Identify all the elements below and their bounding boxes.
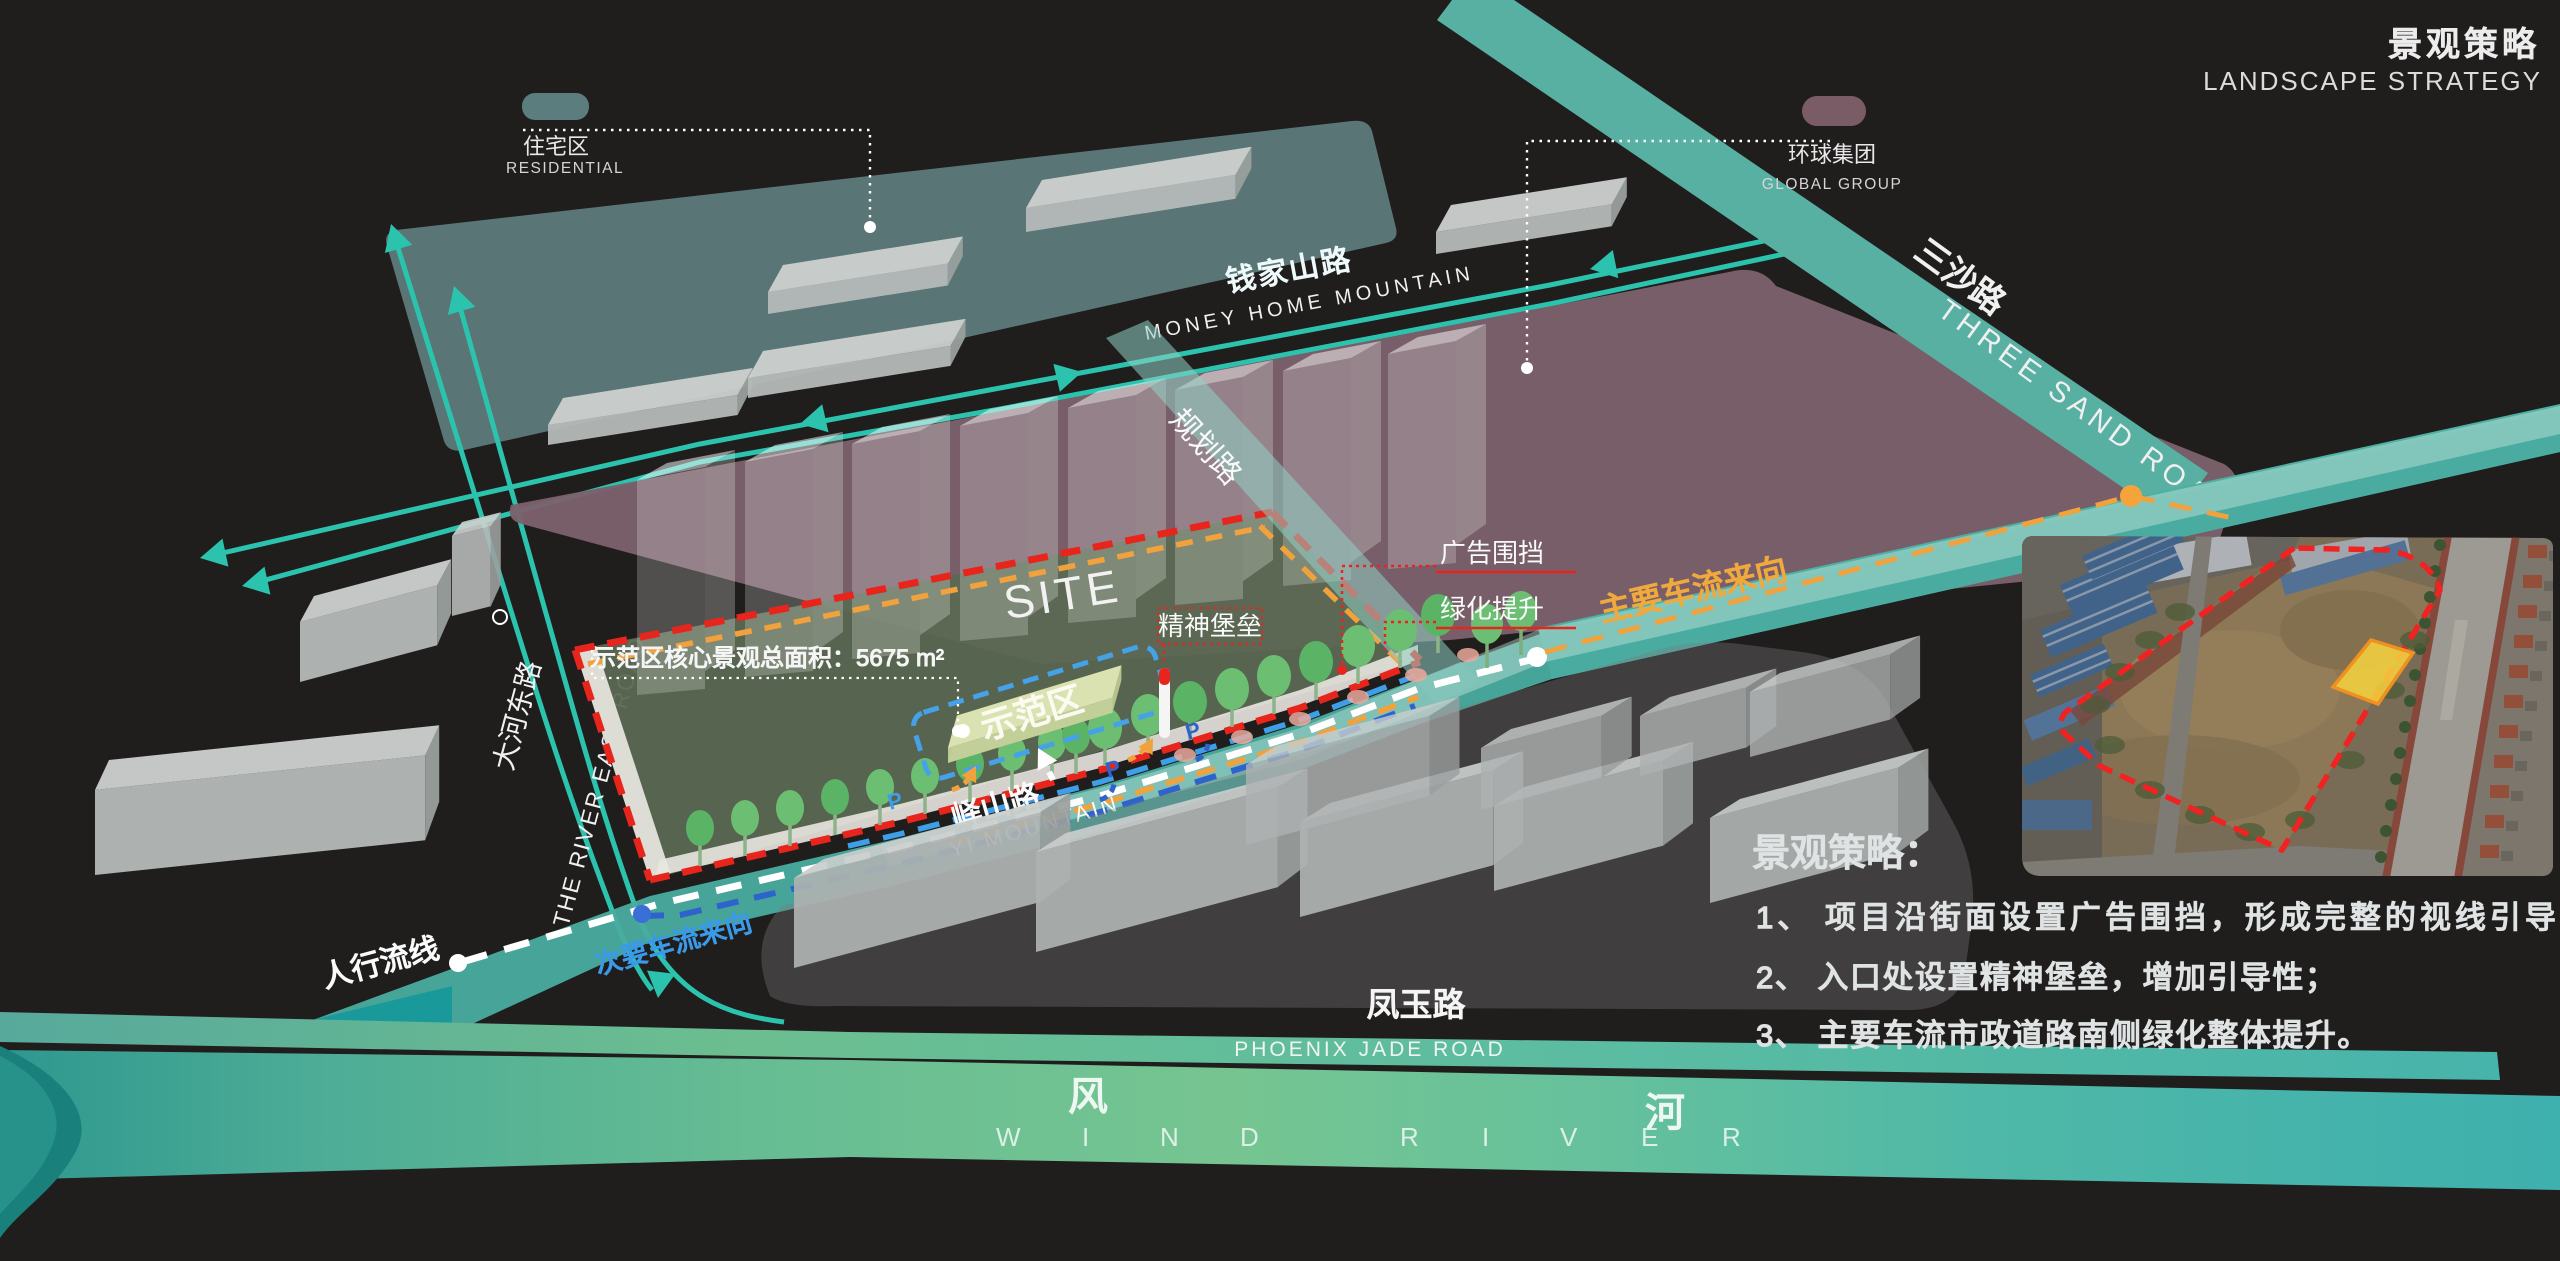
svg-text:I: I xyxy=(1082,1122,1089,1152)
svg-text:W: W xyxy=(996,1122,1021,1152)
svg-text:PHOENIX JADE ROAD: PHOENIX JADE ROAD xyxy=(1234,1038,1506,1061)
svg-text:环球集团: 环球集团 xyxy=(1788,142,1876,167)
svg-text:景观策略: 景观策略 xyxy=(2388,26,2540,64)
svg-text:风: 风 xyxy=(1068,1075,1108,1119)
svg-text:R: R xyxy=(1400,1122,1419,1152)
svg-text:景观策略：: 景观策略： xyxy=(1752,833,1942,875)
svg-text:E: E xyxy=(1641,1122,1658,1152)
svg-text:RESIDENTIAL: RESIDENTIAL xyxy=(506,160,624,177)
svg-text:R: R xyxy=(1722,1122,1741,1152)
svg-text:绿化提升: 绿化提升 xyxy=(1440,594,1544,624)
svg-text:GLOBAL GROUP: GLOBAL GROUP xyxy=(1762,176,1903,193)
svg-text:3、 主要车流市政道路南侧绿化整体提升。: 3、 主要车流市政道路南侧绿化整体提升。 xyxy=(1756,1018,2370,1053)
svg-text:广告围挡: 广告围挡 xyxy=(1440,538,1544,568)
svg-text:精神堡垒: 精神堡垒 xyxy=(1158,611,1262,641)
svg-text:住宅区: 住宅区 xyxy=(523,134,589,159)
svg-text:D: D xyxy=(1240,1122,1259,1152)
svg-text:凤玉路: 凤玉路 xyxy=(1367,986,1466,1023)
svg-text:LANDSCAPE STRATEGY: LANDSCAPE STRATEGY xyxy=(2203,66,2542,96)
svg-text:V: V xyxy=(1560,1122,1578,1152)
svg-text:I: I xyxy=(1482,1122,1489,1152)
svg-text:2、 入口处设置精神堡垒，增加引导性；: 2、 入口处设置精神堡垒，增加引导性； xyxy=(1756,960,2337,995)
svg-text:示范区核心景观总面积：5675 m²: 示范区核心景观总面积：5675 m² xyxy=(592,645,944,672)
svg-text:1、 项目沿街面设置广告围挡，形成完整的视线引导界面；: 1、 项目沿街面设置广告围挡，形成完整的视线引导界面； xyxy=(1756,900,2560,935)
svg-text:N: N xyxy=(1160,1122,1179,1152)
